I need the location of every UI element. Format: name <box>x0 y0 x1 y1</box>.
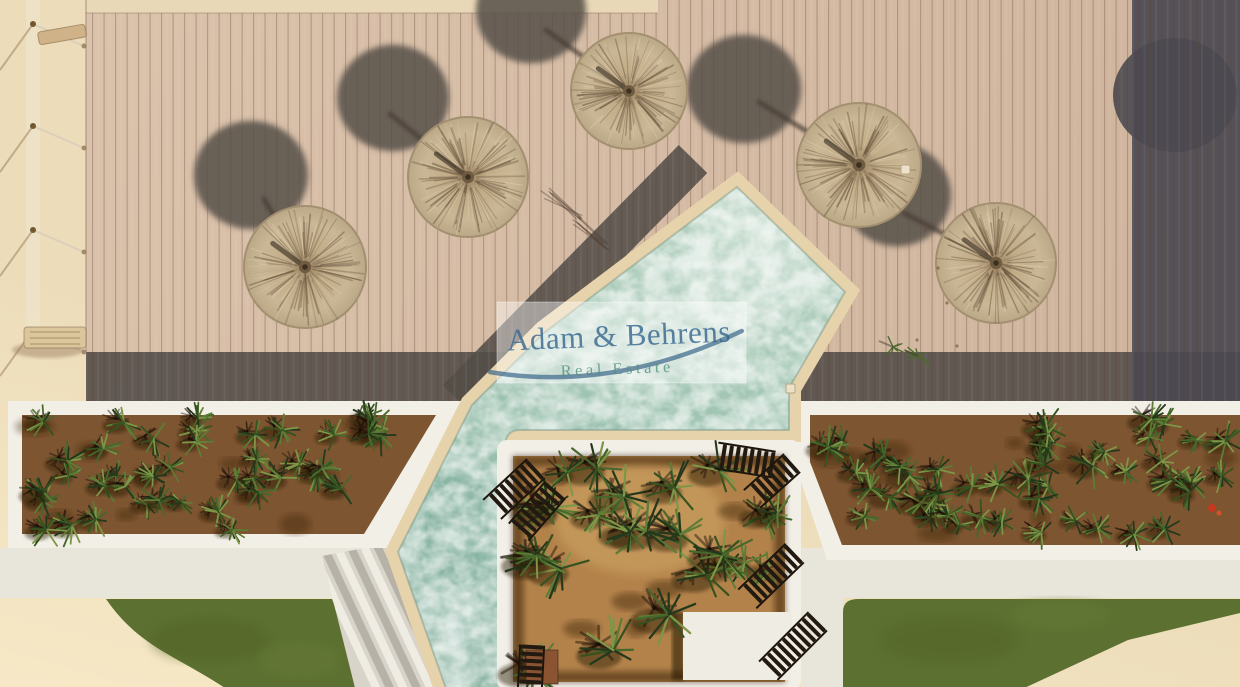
red-flower <box>1208 504 1216 512</box>
umbrella-1 <box>243 205 367 329</box>
scene-svg: Adam & Behrens Real Estate <box>0 0 1240 687</box>
umbrella-5 <box>935 202 1057 324</box>
umbrella-2 <box>407 116 529 238</box>
umbrella-3 <box>570 32 688 150</box>
deck-light <box>901 165 910 174</box>
umbrella-shadow-4 <box>687 35 801 143</box>
planter-bed-right <box>797 401 1240 560</box>
pool-drain <box>786 384 795 393</box>
watermark: Adam & Behrens Real Estate <box>488 302 746 383</box>
red-flower <box>1217 511 1222 516</box>
aerial-photo: Adam & Behrens Real Estate <box>0 0 1240 687</box>
